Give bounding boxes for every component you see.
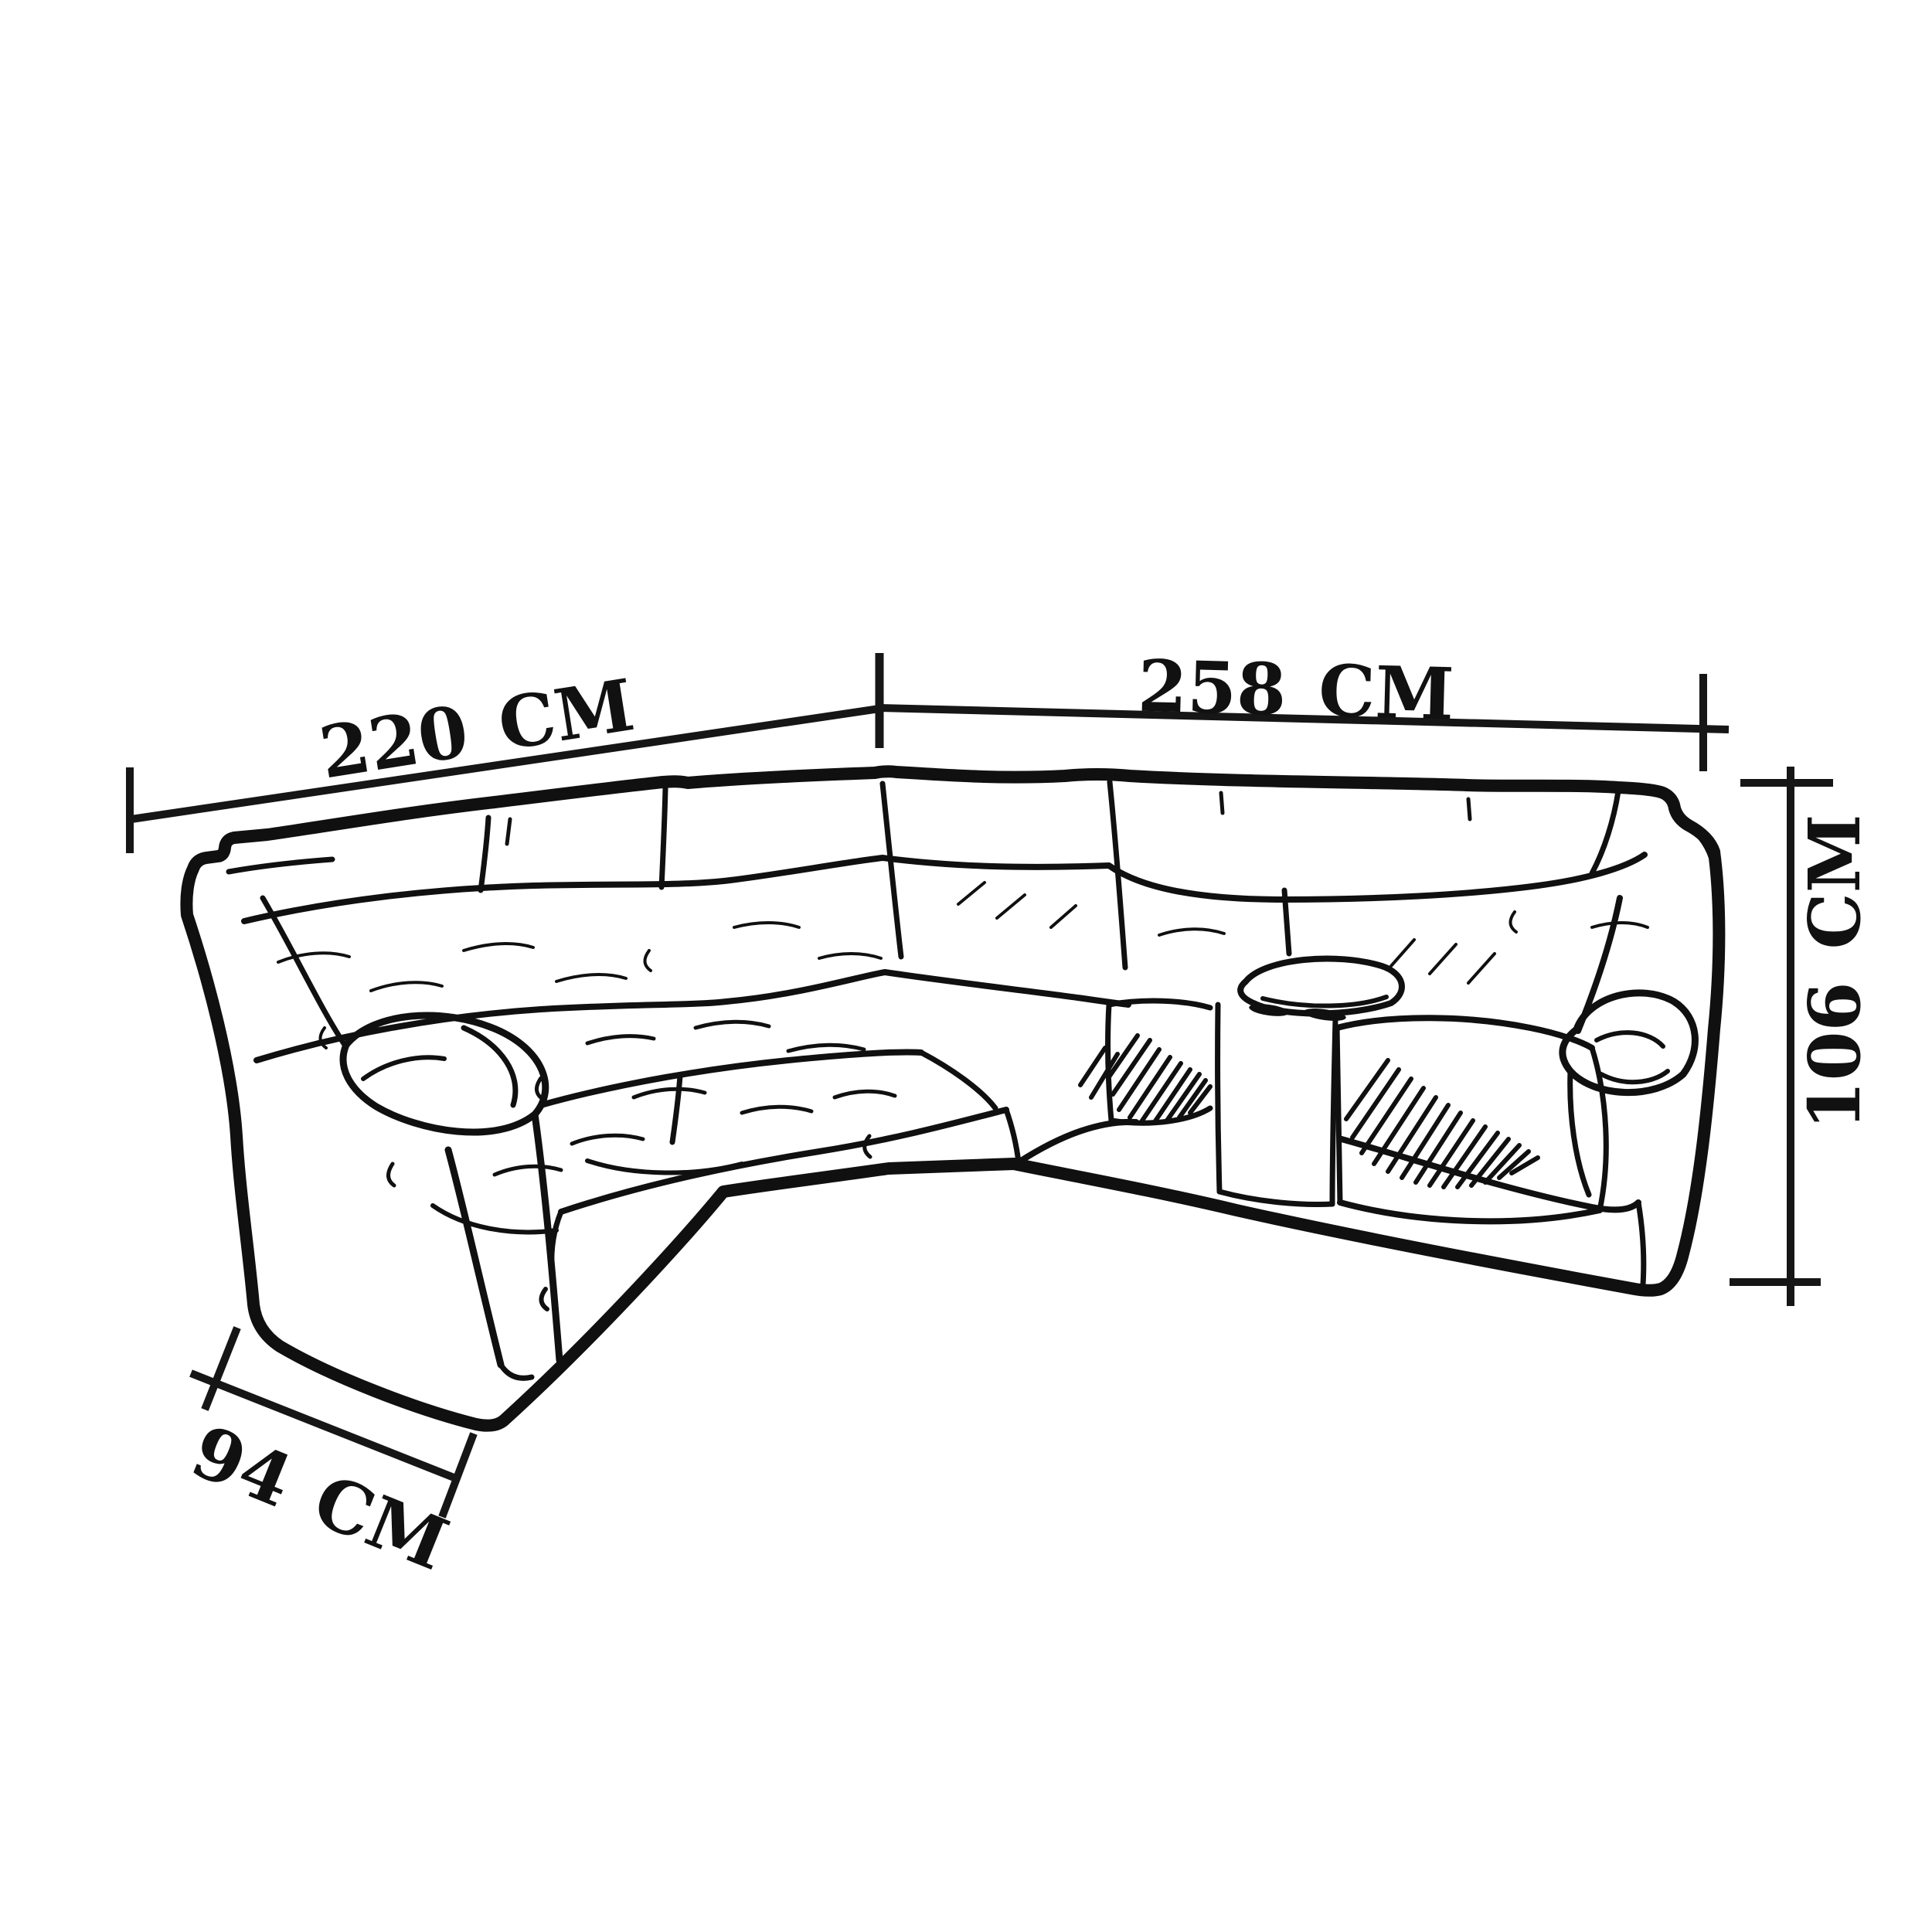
sketch-svg: 220 CM 258 CM 106 CM 94 CM: [0, 0, 1932, 1932]
back-cushion-seams: [481, 782, 1618, 968]
dimension-258: 258 CM: [879, 645, 1729, 771]
sofa-outline: [186, 771, 1719, 1425]
dimension-220: 220 CM: [130, 653, 879, 853]
left-arm-front-left-edge: [448, 1150, 501, 1365]
backrest-top-seam: [244, 855, 1645, 921]
dimension-106: 106 CM: [1730, 767, 1876, 1306]
left-armrest: [229, 859, 560, 1365]
sofa-sketch: [186, 771, 1719, 1425]
sofa-dimension-sketch: 220 CM 258 CM 106 CM 94 CM: [0, 0, 1932, 1932]
dim-tick-94-left: [205, 1328, 237, 1410]
dim-label-height: 106 CM: [1793, 814, 1876, 1130]
left-seat-cushions: [433, 1052, 1019, 1269]
cup-holder-right: [1302, 1006, 1346, 1023]
console-front-bottom: [1219, 1192, 1332, 1204]
dim-label-left-width: 220 CM: [314, 663, 639, 795]
console-left-edge: [1218, 1005, 1219, 1192]
hatching-corner-cushion: [1080, 1036, 1210, 1122]
dim-label-right-width: 258 CM: [1137, 645, 1455, 736]
hatching-right-cushion: [1346, 1060, 1538, 1187]
dim-label-depth: 94 CM: [181, 1410, 459, 1587]
